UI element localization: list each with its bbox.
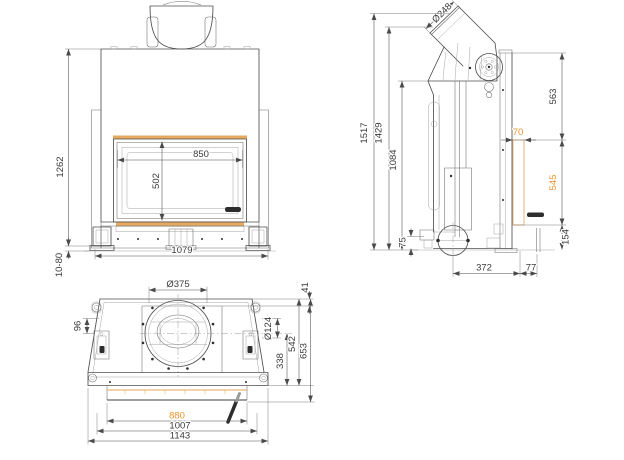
dim-intake-to-rear: 372 (476, 263, 492, 274)
door-handle-front (225, 207, 241, 212)
dim-flue-face-height: 1429 (374, 122, 385, 143)
dim-collar-diameter: Ø375 (166, 279, 189, 290)
dim-glass-width: 850 (193, 149, 209, 160)
rear-heat-panel-highlight (513, 140, 524, 225)
curved-glass-front (107, 386, 247, 401)
dim-leg-adjust: 10-80 (54, 253, 65, 277)
front-body (92, 47, 269, 249)
front-view: 850 502 1079 1262 10-80 (54, 1, 276, 277)
dim-base-width: 1079 (171, 245, 192, 256)
dim-rear-offset: 41 (300, 282, 311, 293)
dim-overall-height: 1262 (55, 156, 66, 177)
dim-rear-panel-offset: 70 (513, 127, 524, 138)
dim-overall-height-side: 1517 (359, 122, 370, 143)
front-dimensions: 850 502 1079 1262 10-80 (54, 49, 268, 277)
dim-rear-to-front: 542 (287, 336, 298, 352)
side-body (410, 81, 555, 253)
bottom-view: Ø375 96 41 Ø124 338 542 653 880 (73, 279, 315, 445)
front-flue-dome (147, 1, 216, 49)
dim-side-opening-diameter: Ø124 (263, 317, 274, 340)
bottom-body (88, 299, 264, 373)
technical-drawing: 850 502 1079 1262 10-80 (0, 0, 624, 460)
side-dimensions: Ø248 1517 1429 1084 75 563 70 545 (359, 1, 572, 278)
dim-glass-height: 502 (151, 173, 162, 189)
door-handle-side (527, 213, 544, 218)
dim-side-offset: 96 (73, 321, 84, 332)
dim-overall-width: 1143 (170, 431, 190, 442)
dim-rear-panel-height: 545 (548, 175, 559, 191)
side-latch-left (94, 331, 109, 359)
dim-intake-offset: 75 (398, 237, 409, 248)
dim-upper-rear-height: 563 (548, 89, 559, 105)
side-rear-panel (499, 50, 512, 249)
dim-rear-clearance: 77 (526, 263, 537, 274)
air-intake-spigot (436, 222, 470, 258)
damper-pulley-wheel (476, 54, 503, 98)
front-door-window (113, 136, 247, 227)
bottom-dimensions: Ø375 96 41 Ø124 338 542 653 880 (73, 279, 315, 445)
dim-center-to-front: 338 (275, 353, 286, 369)
dim-body-height: 1084 (388, 149, 399, 170)
side-view: Ø248 1517 1429 1084 75 563 70 545 (359, 1, 572, 278)
door-handle-bottom (228, 394, 240, 423)
dim-overall-depth: 653 (299, 343, 310, 359)
bottom-front-plate (88, 373, 268, 386)
dim-base-rear-height: 154 (561, 229, 572, 245)
technical-drawing-page: 850 502 1079 1262 10-80 (0, 0, 624, 460)
side-latch-right (243, 331, 258, 359)
